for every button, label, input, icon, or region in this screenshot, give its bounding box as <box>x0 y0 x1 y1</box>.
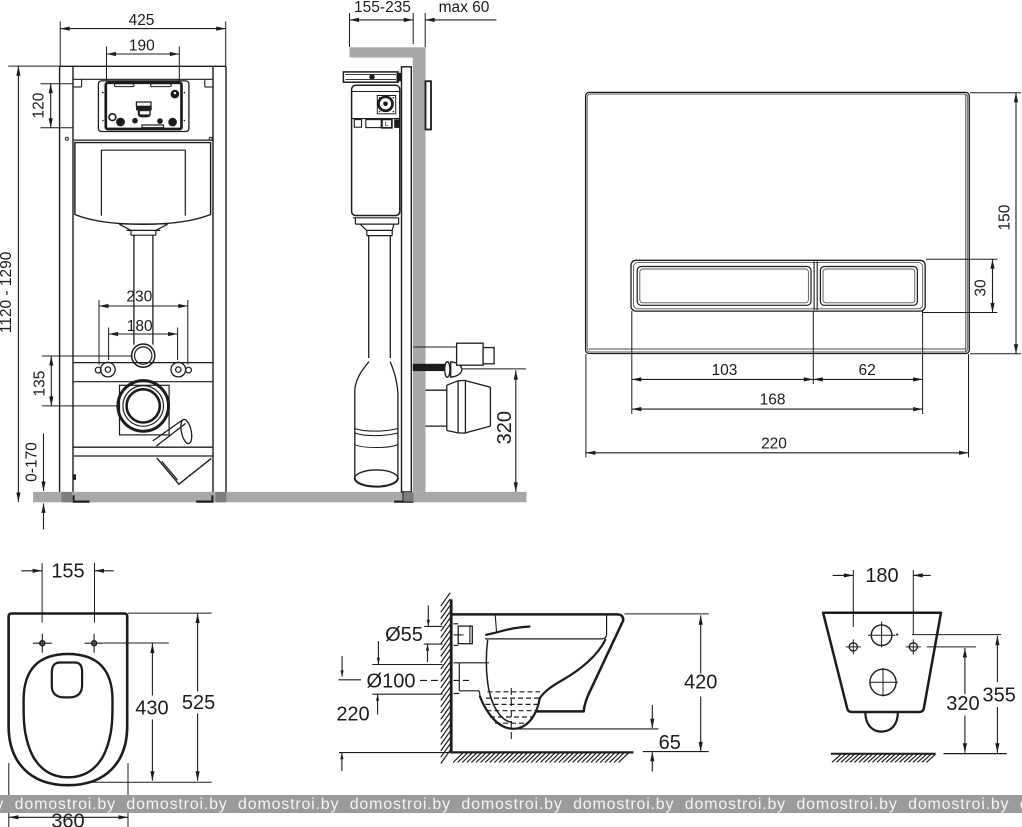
svg-text:430: 430 <box>135 698 168 720</box>
svg-text:230: 230 <box>126 289 152 306</box>
svg-text:155-235: 155-235 <box>354 0 411 16</box>
svg-text:180: 180 <box>127 318 153 335</box>
svg-text:0-170: 0-170 <box>23 442 40 482</box>
svg-text:320: 320 <box>494 411 516 444</box>
svg-text:190: 190 <box>129 37 155 54</box>
svg-text:168: 168 <box>760 392 786 409</box>
svg-text:120: 120 <box>31 92 48 118</box>
svg-text:420: 420 <box>684 671 717 693</box>
svg-text:Ø100: Ø100 <box>367 671 416 693</box>
svg-text:max 60: max 60 <box>439 0 490 16</box>
svg-text:135: 135 <box>31 371 48 397</box>
svg-text:355: 355 <box>983 685 1016 707</box>
svg-text:180: 180 <box>865 565 898 587</box>
svg-text:65: 65 <box>659 732 681 754</box>
svg-text:103: 103 <box>712 362 738 379</box>
svg-text:Ø55: Ø55 <box>385 624 423 646</box>
svg-text:30: 30 <box>973 279 990 297</box>
svg-text:150: 150 <box>997 204 1014 230</box>
svg-text:220: 220 <box>761 435 787 452</box>
svg-text:L: L <box>385 121 389 128</box>
svg-text:220: 220 <box>336 704 369 726</box>
svg-text:62: 62 <box>858 362 875 379</box>
svg-text:155: 155 <box>51 561 84 583</box>
svg-text:1120 - 1290: 1120 - 1290 <box>0 251 15 333</box>
svg-text:425: 425 <box>129 12 155 29</box>
svg-text:domostroi.by domostroi.by do: domostroi.by domostroi.by domostroi.by d… <box>0 796 1022 813</box>
svg-text:320: 320 <box>946 693 979 715</box>
svg-text:525: 525 <box>182 692 215 714</box>
svg-text:360: 360 <box>51 811 84 827</box>
